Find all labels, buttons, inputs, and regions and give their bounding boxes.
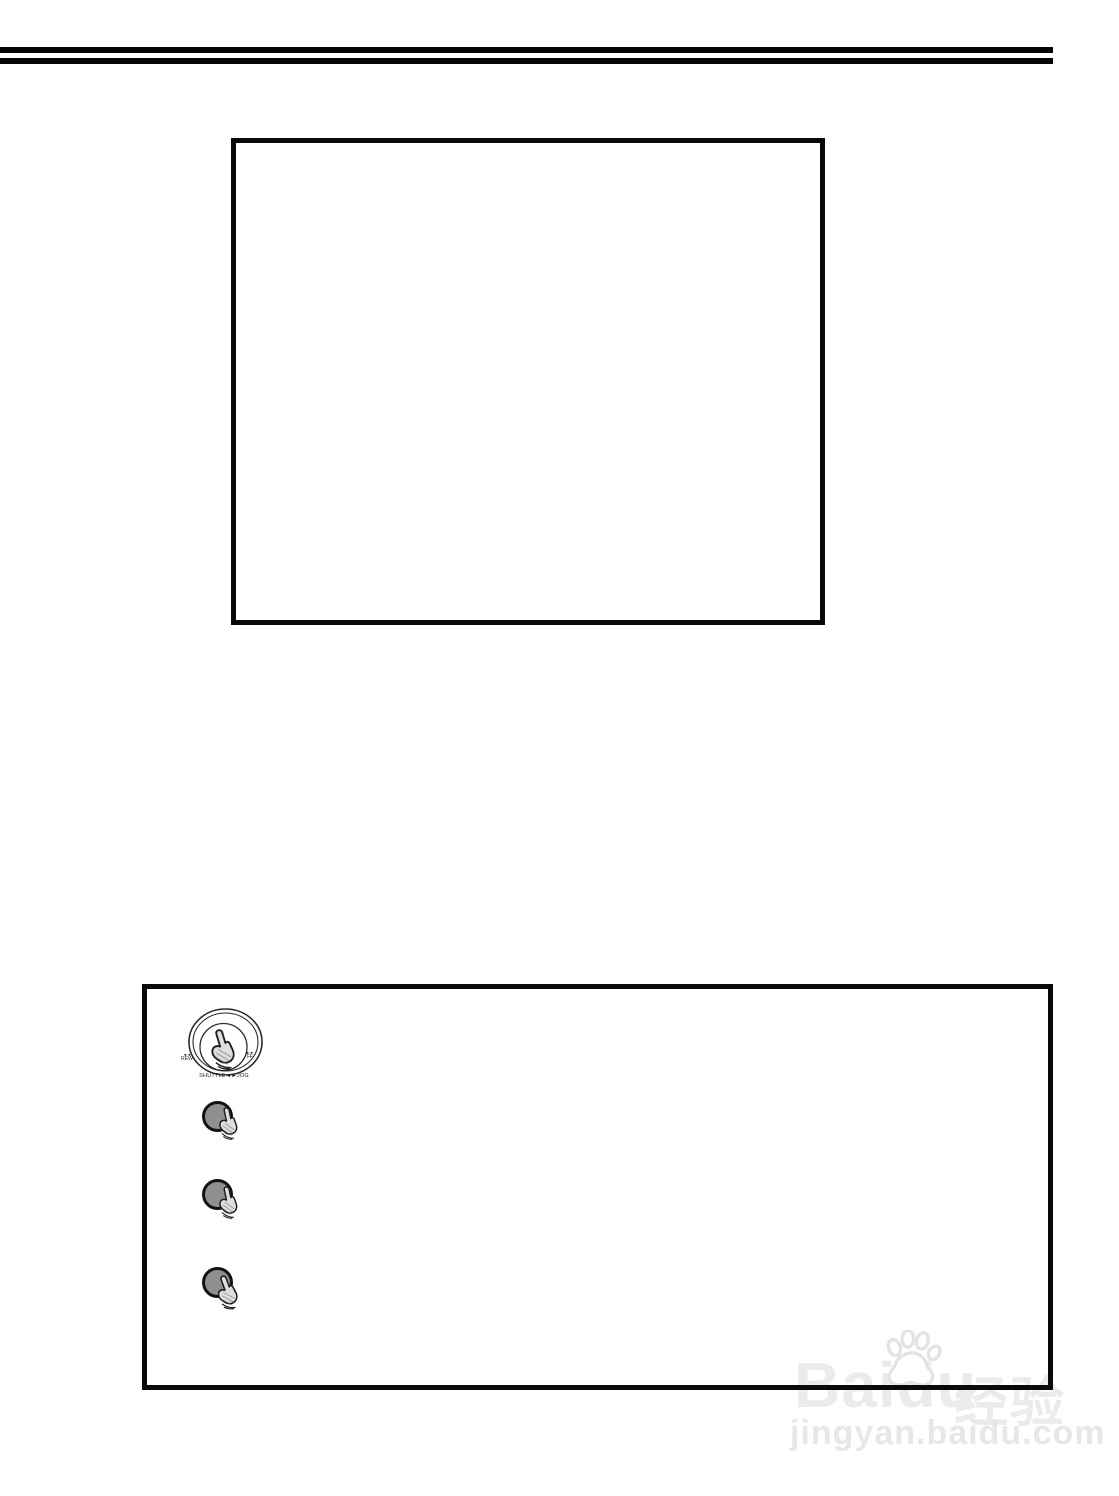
dial-ff-label: ►► FF — [241, 1051, 259, 1060]
top-rule-lower — [0, 58, 1053, 64]
hand-pointer-icon — [215, 1185, 242, 1220]
document-page: Baidu 经验 jingyan.baidu.com ◄◄ REW ►► FF … — [0, 0, 1119, 1496]
watermark-url-text: jingyan.baidu.com — [790, 1414, 1105, 1453]
hand-pointer-icon — [211, 1272, 245, 1313]
instruction-panel-frame — [142, 984, 1053, 1390]
dial-caption: SHUTTLE◄►JOG — [192, 1073, 256, 1079]
dial-rew-label: ◄◄ REW — [177, 1053, 197, 1062]
top-rule-upper — [0, 47, 1053, 53]
hand-pointer-icon — [215, 1106, 242, 1141]
screen-illustration-frame — [231, 138, 825, 625]
hand-pointer-icon — [204, 1027, 242, 1073]
